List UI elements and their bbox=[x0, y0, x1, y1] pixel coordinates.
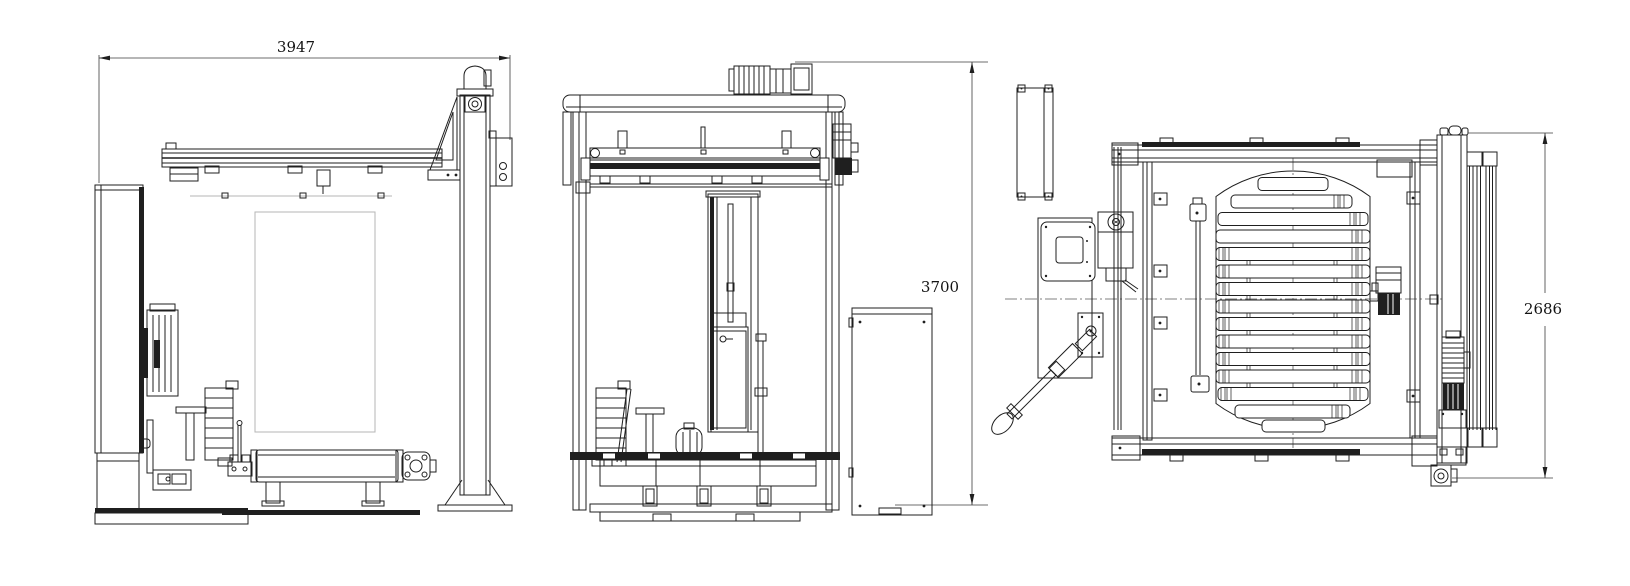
carriage-motor-plan bbox=[1439, 331, 1470, 428]
drawing-canvas: 3947 bbox=[0, 0, 1630, 586]
dimension-overall-width: 3947 bbox=[99, 38, 510, 183]
column-bracket bbox=[490, 138, 512, 186]
lift-motor-dome bbox=[464, 66, 486, 89]
lift-motor-front bbox=[729, 64, 812, 94]
drive-wheel bbox=[402, 452, 430, 480]
guide-rail-plan bbox=[1190, 198, 1209, 392]
clamp-arm-plan bbox=[988, 313, 1103, 438]
turntable-front bbox=[570, 452, 840, 521]
turntable-rollers bbox=[1216, 178, 1370, 433]
fan-icon bbox=[469, 98, 482, 111]
top-beam-arm bbox=[162, 143, 442, 198]
dimension-overall-depth: 2686 bbox=[1452, 133, 1562, 478]
carriage-mast-front bbox=[706, 191, 767, 452]
roller-conveyor-side bbox=[251, 450, 436, 506]
carriage-drive-front bbox=[833, 124, 851, 158]
side-view: 3947 bbox=[95, 38, 512, 524]
dim-width-label: 3947 bbox=[277, 38, 315, 56]
top-view: 2686 bbox=[988, 85, 1562, 486]
base-side bbox=[95, 508, 420, 524]
clamp-assembly-side bbox=[147, 381, 252, 490]
dimension-overall-height: 3700 bbox=[795, 62, 988, 505]
column-plan bbox=[1431, 126, 1497, 486]
turntable-motor-plan bbox=[1370, 267, 1401, 315]
mast-rails-plan bbox=[1467, 152, 1497, 447]
platen-assembly bbox=[576, 124, 858, 193]
front-view: 3700 bbox=[563, 62, 988, 521]
load-outline bbox=[255, 212, 375, 432]
dim-depth-label: 2686 bbox=[1524, 300, 1562, 318]
carriage-unit-plan bbox=[1098, 212, 1133, 268]
bottom-gearbox-plan bbox=[1431, 465, 1457, 486]
column-side bbox=[428, 66, 512, 511]
turntable-plan bbox=[1216, 171, 1370, 432]
film-mast bbox=[95, 185, 150, 509]
clamp-paddle bbox=[988, 409, 1018, 439]
control-box-plan bbox=[1038, 212, 1138, 378]
top-frame-beam bbox=[563, 95, 845, 185]
press-arm-plan bbox=[1017, 85, 1053, 200]
film-carriage-side bbox=[144, 304, 178, 396]
film-clamp-front bbox=[676, 428, 702, 456]
control-cabinet-front bbox=[849, 308, 932, 515]
ladder-frame bbox=[205, 388, 233, 460]
dim-height-label: 3700 bbox=[921, 278, 959, 296]
cabinet-handle bbox=[879, 508, 901, 514]
